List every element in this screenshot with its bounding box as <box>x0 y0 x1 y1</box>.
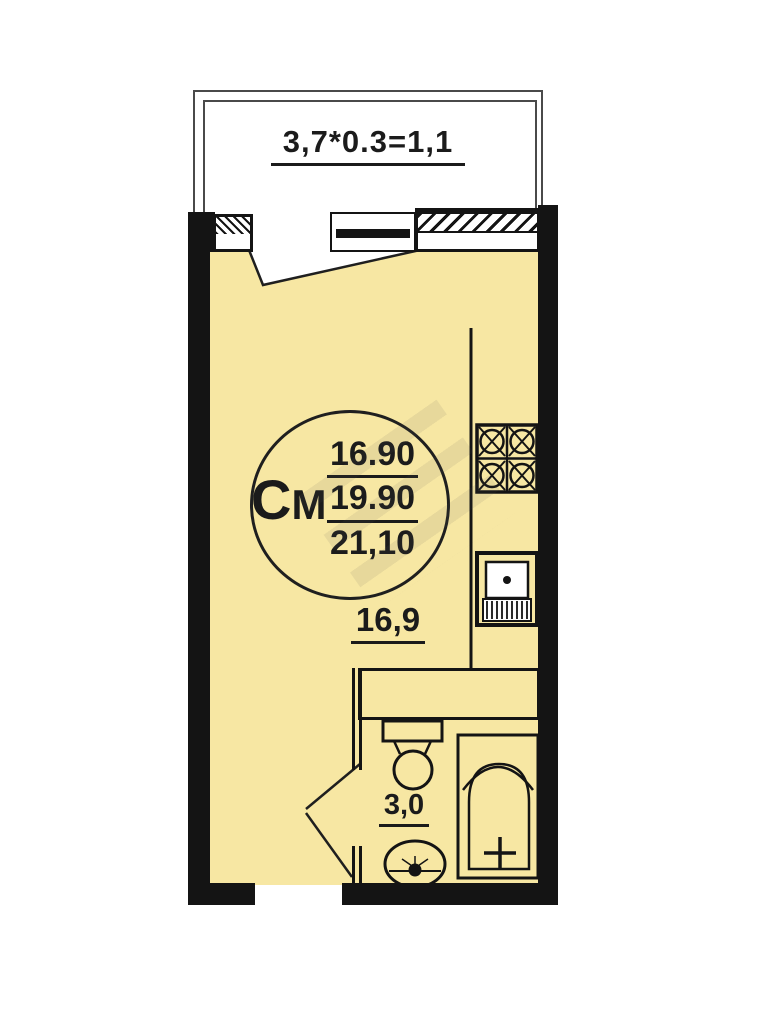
balcony-dimension-label: 3,7*0.3=1,1 <box>193 124 543 166</box>
wall-bottom-right <box>342 883 558 905</box>
balcony-door-block <box>330 212 416 252</box>
bathroom-area-text: 3,0 <box>379 789 429 827</box>
bathroom-area-label: 3,0 <box>368 789 440 827</box>
bathroom-wall-left-lower <box>352 846 362 885</box>
wall-right <box>538 205 558 905</box>
stamp-letter-large: С <box>251 468 291 531</box>
wall-pier-hatched <box>213 214 253 252</box>
pier-hatch <box>216 217 250 234</box>
balcony-dimension-text: 3,7*0.3=1,1 <box>271 124 465 166</box>
bathroom-wall-left-upper <box>352 668 362 770</box>
window-icon <box>415 208 540 252</box>
bathroom-wall-top <box>358 668 540 720</box>
window-hatch <box>418 214 537 233</box>
room-area-text: 16,9 <box>351 601 425 644</box>
wall-bottom-left <box>188 883 255 905</box>
wall-top-left-corner <box>188 212 215 252</box>
wall-left <box>188 212 210 883</box>
balcony-door-leaf <box>336 229 410 238</box>
room-area-label: 16,9 <box>342 601 434 644</box>
floor-plan-canvas: 3,7*0.3=1,1 <box>0 0 766 1009</box>
